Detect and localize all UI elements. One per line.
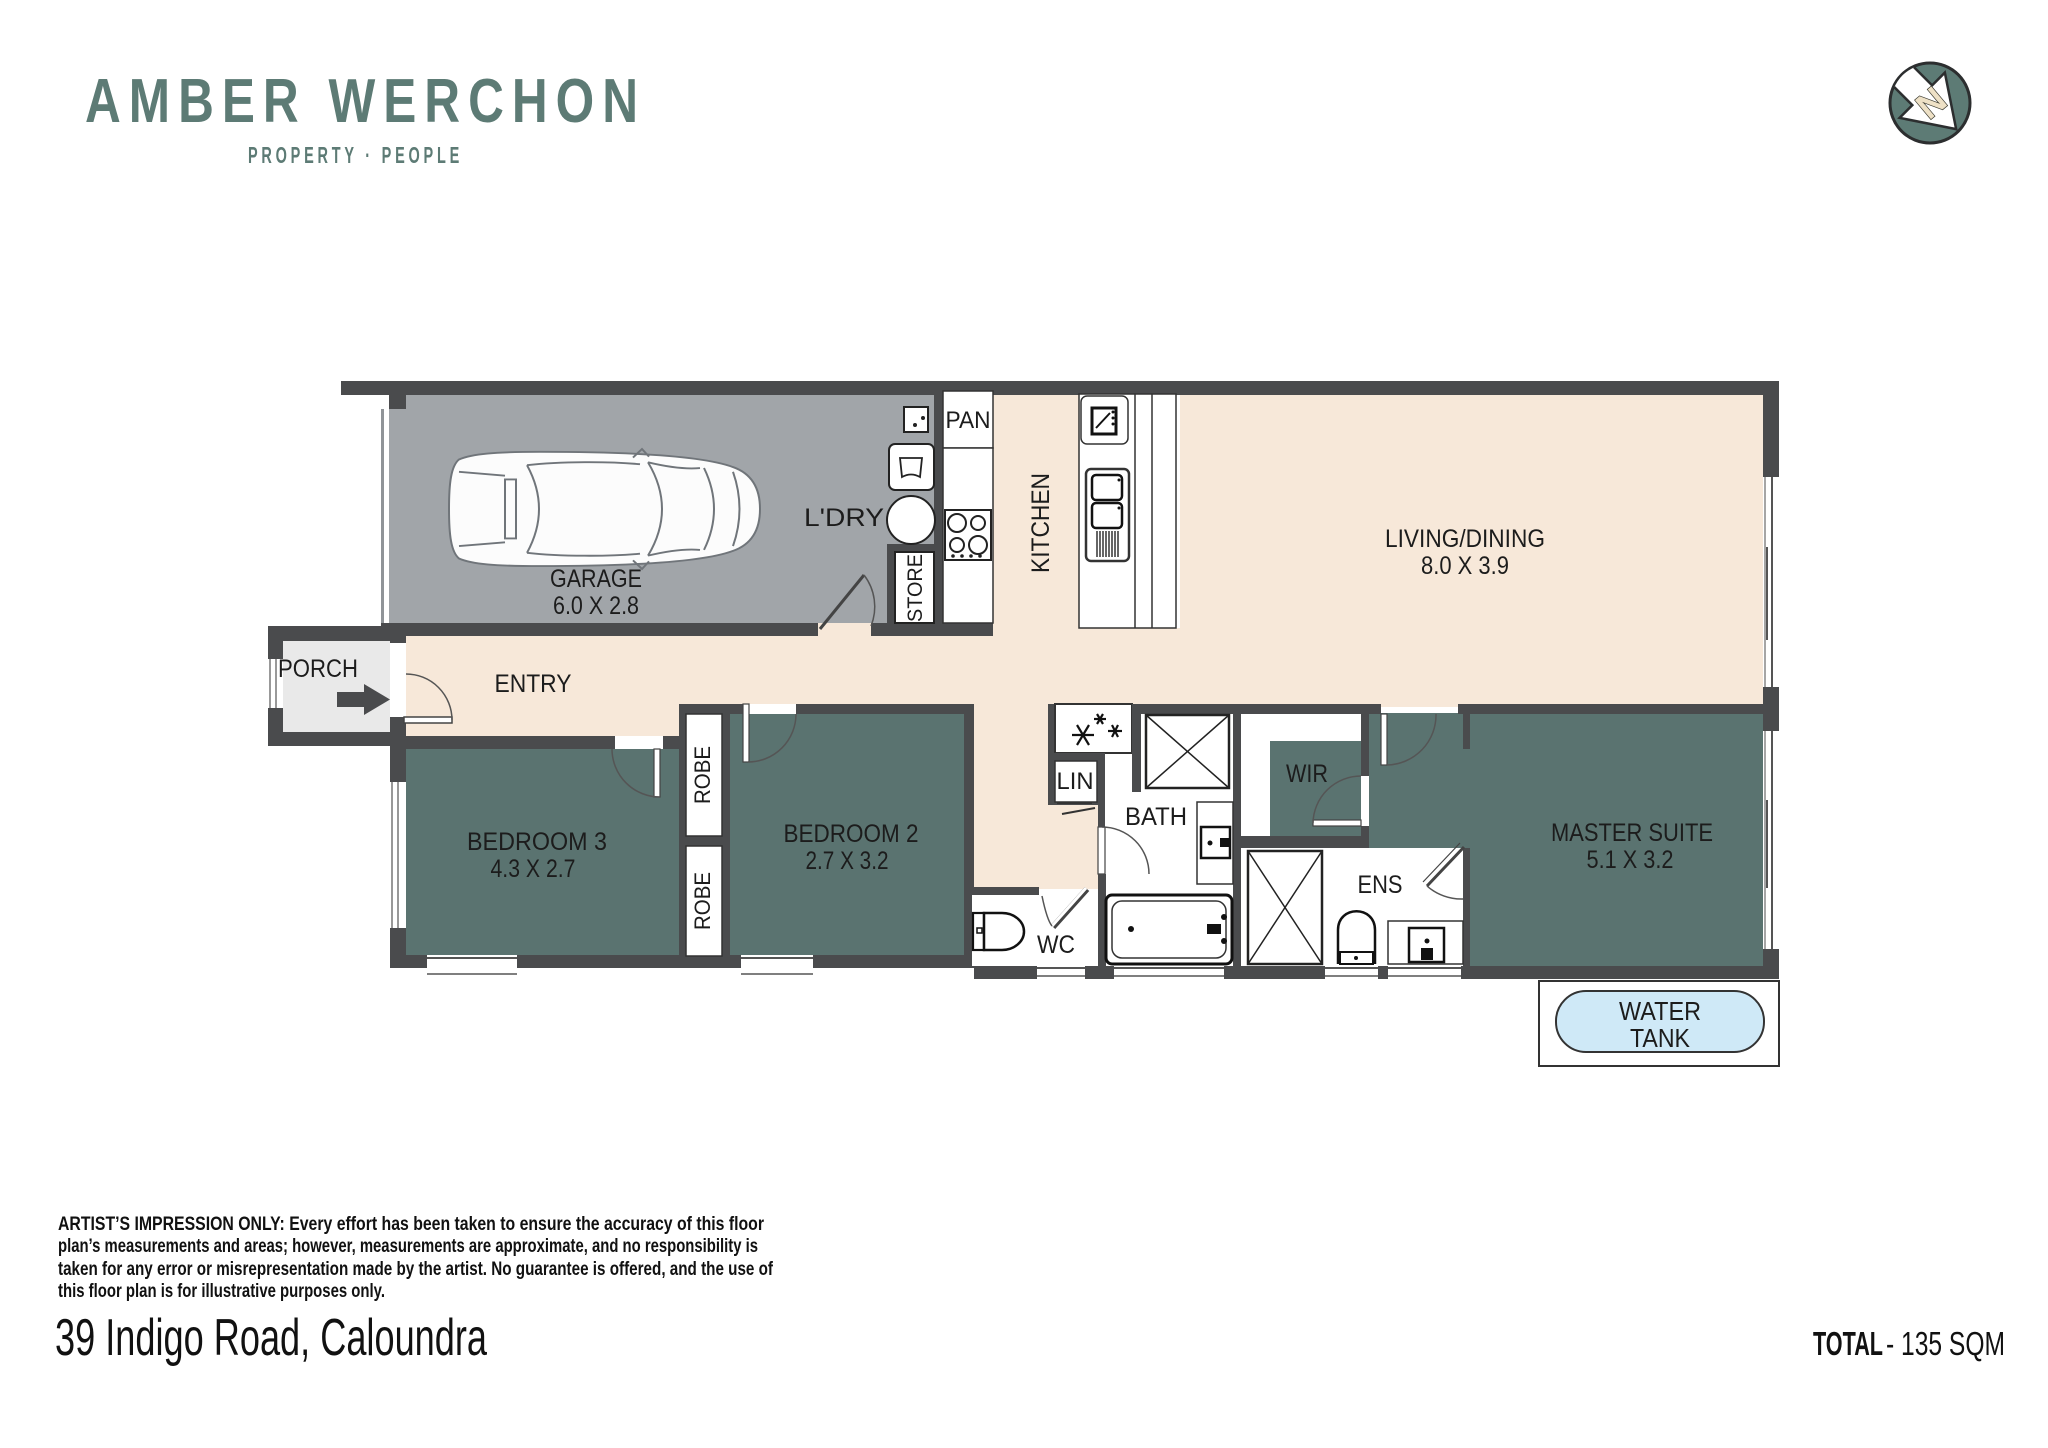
svg-text:2.7 X 3.2: 2.7 X 3.2 <box>806 847 889 875</box>
svg-text:taken for any error or misrepr: taken for any error or misrepresentation… <box>58 1258 773 1280</box>
svg-text:ARTIST’S IMPRESSION ONLY: Ever: ARTIST’S IMPRESSION ONLY: Every effort h… <box>58 1213 764 1235</box>
svg-text:WATER: WATER <box>1619 996 1701 1026</box>
svg-text:PORCH: PORCH <box>278 655 358 683</box>
svg-text:plan’s measurements and areas;: plan’s measurements and areas; however, … <box>58 1235 758 1257</box>
svg-text:ENS: ENS <box>1358 871 1403 899</box>
svg-text:LIVING/DINING: LIVING/DINING <box>1385 525 1545 553</box>
svg-text:- 135 SQM: - 135 SQM <box>1886 1325 2005 1362</box>
svg-text:AMBER WERCHON: AMBER WERCHON <box>85 67 646 136</box>
svg-text:BEDROOM 2: BEDROOM 2 <box>784 820 919 848</box>
svg-text:ENTRY: ENTRY <box>495 670 572 698</box>
svg-text:ROBE: ROBE <box>690 746 715 804</box>
svg-text:GARAGE: GARAGE <box>550 565 642 593</box>
svg-text:WIR: WIR <box>1286 760 1328 788</box>
svg-text:6.0 X 2.8: 6.0 X 2.8 <box>553 592 639 620</box>
svg-text:4.3 X 2.7: 4.3 X 2.7 <box>491 855 576 883</box>
svg-text:this floor plan is for illustr: this floor plan is for illustrative purp… <box>58 1280 385 1302</box>
svg-text:ROBE: ROBE <box>690 872 715 930</box>
svg-text:KITCHEN: KITCHEN <box>1027 473 1055 573</box>
svg-text:PAN: PAN <box>946 407 991 434</box>
svg-text:TOTAL: TOTAL <box>1813 1325 1883 1362</box>
svg-text:PROPERTY · PEOPLE: PROPERTY · PEOPLE <box>248 142 463 168</box>
svg-text:39 Indigo Road, Caloundra: 39 Indigo Road, Caloundra <box>55 1309 487 1367</box>
svg-text:WC: WC <box>1037 931 1075 959</box>
svg-text:5.1 X 3.2: 5.1 X 3.2 <box>1587 846 1674 874</box>
svg-text:MASTER SUITE: MASTER SUITE <box>1551 819 1713 847</box>
svg-text:TANK: TANK <box>1630 1023 1691 1053</box>
svg-text:STORE: STORE <box>904 554 927 622</box>
svg-text:BATH: BATH <box>1125 803 1187 831</box>
svg-text:8.0 X 3.9: 8.0 X 3.9 <box>1421 552 1509 580</box>
svg-text:LIN: LIN <box>1057 768 1094 795</box>
svg-text:L'DRY: L'DRY <box>804 504 884 532</box>
svg-text:BEDROOM 3: BEDROOM 3 <box>467 828 607 856</box>
